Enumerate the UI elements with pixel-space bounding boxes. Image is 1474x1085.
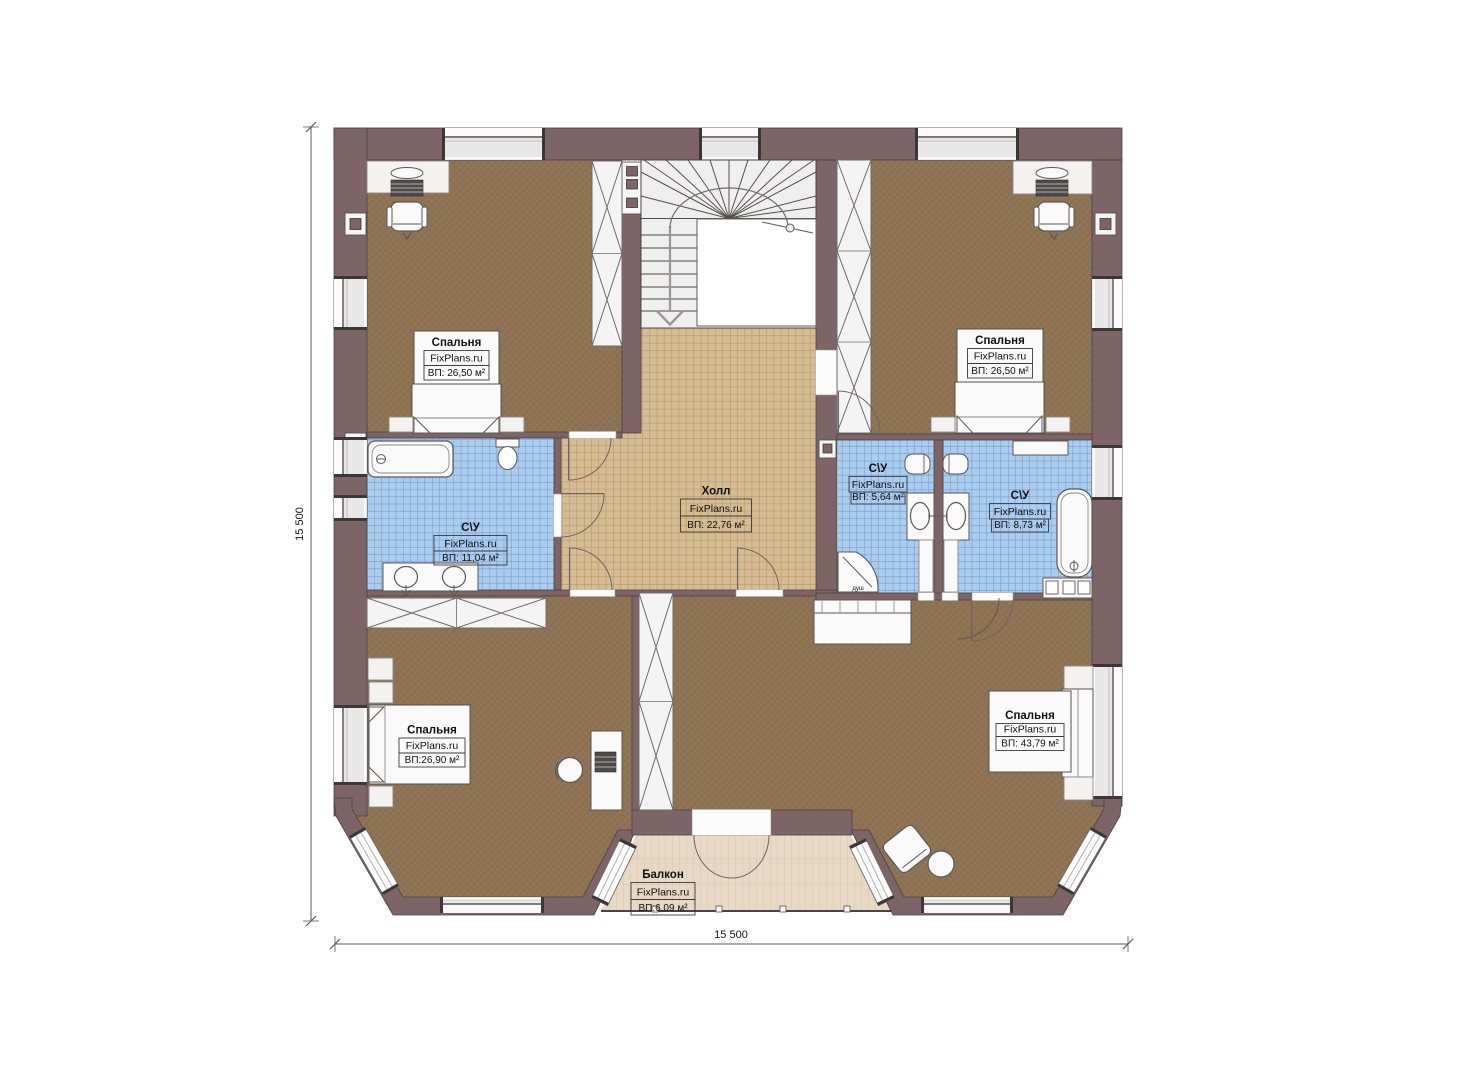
svg-text:FixPlans.ru: FixPlans.ru — [406, 740, 459, 752]
svg-text:ВП: 5,64 м²: ВП: 5,64 м² — [852, 492, 905, 503]
svg-text:15 500: 15 500 — [294, 507, 306, 541]
svg-text:Спальня: Спальня — [407, 725, 457, 737]
svg-text:FixPlans.ru: FixPlans.ru — [974, 351, 1027, 363]
svg-text:С\У: С\У — [869, 463, 889, 475]
svg-text:ВП:6,09 м²: ВП:6,09 м² — [638, 903, 688, 914]
svg-text:Балкон: Балкон — [642, 869, 684, 881]
svg-text:ВП: 11,04 м²: ВП: 11,04 м² — [442, 553, 499, 564]
svg-text:FixPlans.ru: FixPlans.ru — [994, 506, 1047, 518]
svg-text:ВП: 26,50 м²: ВП: 26,50 м² — [971, 366, 1029, 377]
svg-text:ВП: 22,76 м²: ВП: 22,76 м² — [687, 520, 745, 531]
svg-text:ВП:26,90 м²: ВП:26,90 м² — [405, 755, 460, 766]
svg-text:FixPlans.ru: FixPlans.ru — [852, 479, 905, 491]
svg-text:Спальня: Спальня — [1005, 710, 1055, 722]
svg-text:Спальня: Спальня — [432, 337, 482, 349]
svg-text:душ: душ — [852, 586, 864, 592]
svg-text:ВП: 43,79 м²: ВП: 43,79 м² — [1001, 739, 1059, 750]
svg-text:С\У: С\У — [461, 522, 481, 534]
svg-text:Холл: Холл — [702, 486, 731, 498]
svg-text:С\У: С\У — [1011, 490, 1031, 502]
svg-text:FixPlans.ru: FixPlans.ru — [1004, 724, 1057, 736]
svg-text:FixPlans.ru: FixPlans.ru — [637, 887, 690, 899]
svg-text:FixPlans.ru: FixPlans.ru — [690, 503, 743, 515]
svg-text:FixPlans.ru: FixPlans.ru — [430, 353, 483, 365]
svg-text:ВП: 8,73 м²: ВП: 8,73 м² — [994, 520, 1047, 531]
svg-text:15 500: 15 500 — [714, 929, 748, 941]
svg-text:FixPlans.ru: FixPlans.ru — [444, 538, 497, 550]
svg-text:Спальня: Спальня — [975, 335, 1025, 347]
svg-text:ВП: 26,50 м²: ВП: 26,50 м² — [428, 368, 486, 379]
